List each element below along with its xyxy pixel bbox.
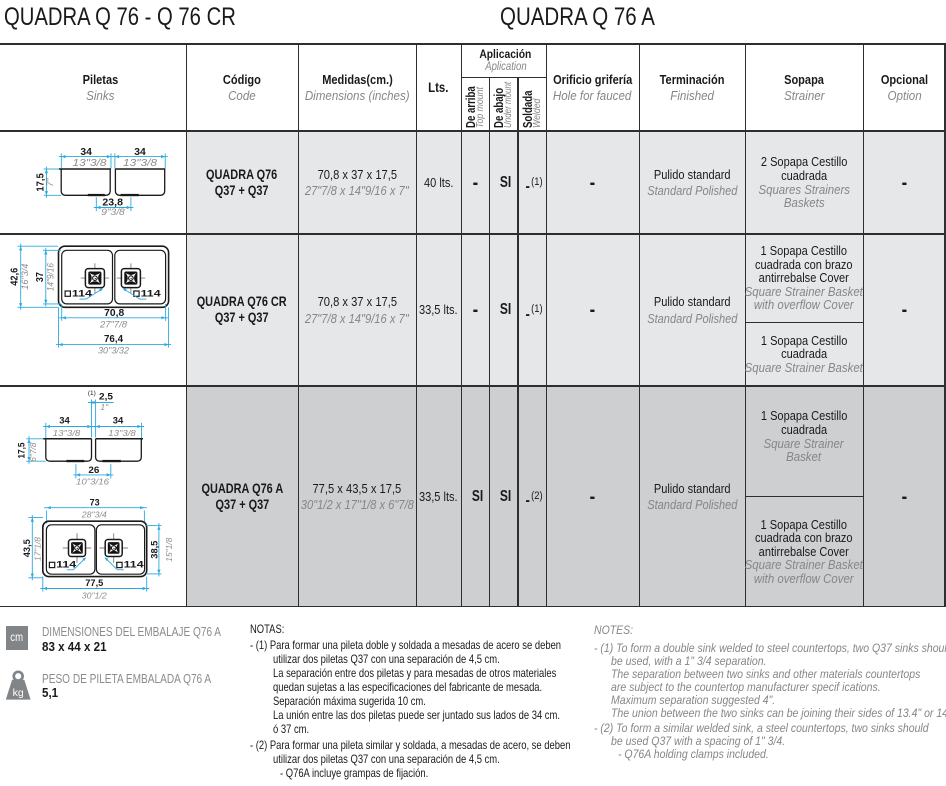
svg-text:114: 114 xyxy=(141,288,162,299)
svg-text:34: 34 xyxy=(59,415,70,425)
svg-text:13"3/8: 13"3/8 xyxy=(53,428,81,438)
svg-text:73: 73 xyxy=(90,497,100,507)
svg-text:28"3/4: 28"3/4 xyxy=(81,509,107,519)
svg-text:34: 34 xyxy=(80,147,92,158)
svg-text:13"3/8: 13"3/8 xyxy=(73,158,108,169)
svg-text:7": 7" xyxy=(45,177,56,186)
svg-text:17"1/8: 17"1/8 xyxy=(33,537,43,561)
svg-text:6"7/8: 6"7/8 xyxy=(28,442,38,461)
svg-text:10"3/16: 10"3/16 xyxy=(76,476,109,486)
svg-text:14"9/16: 14"9/16 xyxy=(45,262,56,291)
svg-text:114: 114 xyxy=(72,288,93,299)
svg-text:9"3/8: 9"3/8 xyxy=(101,207,125,218)
svg-text:1": 1" xyxy=(100,402,109,412)
svg-text:17,5: 17,5 xyxy=(16,443,26,459)
svg-text:37: 37 xyxy=(35,272,46,282)
svg-text:70,8: 70,8 xyxy=(104,308,124,319)
svg-text:kg: kg xyxy=(13,687,24,699)
svg-text:13"3/8: 13"3/8 xyxy=(123,158,158,169)
svg-text:43,5: 43,5 xyxy=(22,539,32,557)
svg-text:2,5: 2,5 xyxy=(99,392,114,403)
svg-text:(1): (1) xyxy=(88,390,96,397)
svg-text:26: 26 xyxy=(88,465,99,475)
svg-text:76,4: 76,4 xyxy=(104,334,123,345)
svg-text:15"1/8: 15"1/8 xyxy=(164,537,174,561)
svg-text:27"7/8: 27"7/8 xyxy=(99,320,128,331)
svg-text:77,5: 77,5 xyxy=(85,578,103,588)
svg-text:30"3/32: 30"3/32 xyxy=(98,346,130,357)
svg-text:30"1/2: 30"1/2 xyxy=(82,590,107,600)
svg-text:34: 34 xyxy=(113,415,124,425)
svg-text:114: 114 xyxy=(124,560,145,571)
svg-text:16"3/4: 16"3/4 xyxy=(20,264,31,290)
svg-text:38,5: 38,5 xyxy=(150,541,160,559)
svg-text:13"3/8: 13"3/8 xyxy=(108,428,136,438)
svg-text:34: 34 xyxy=(134,147,146,158)
